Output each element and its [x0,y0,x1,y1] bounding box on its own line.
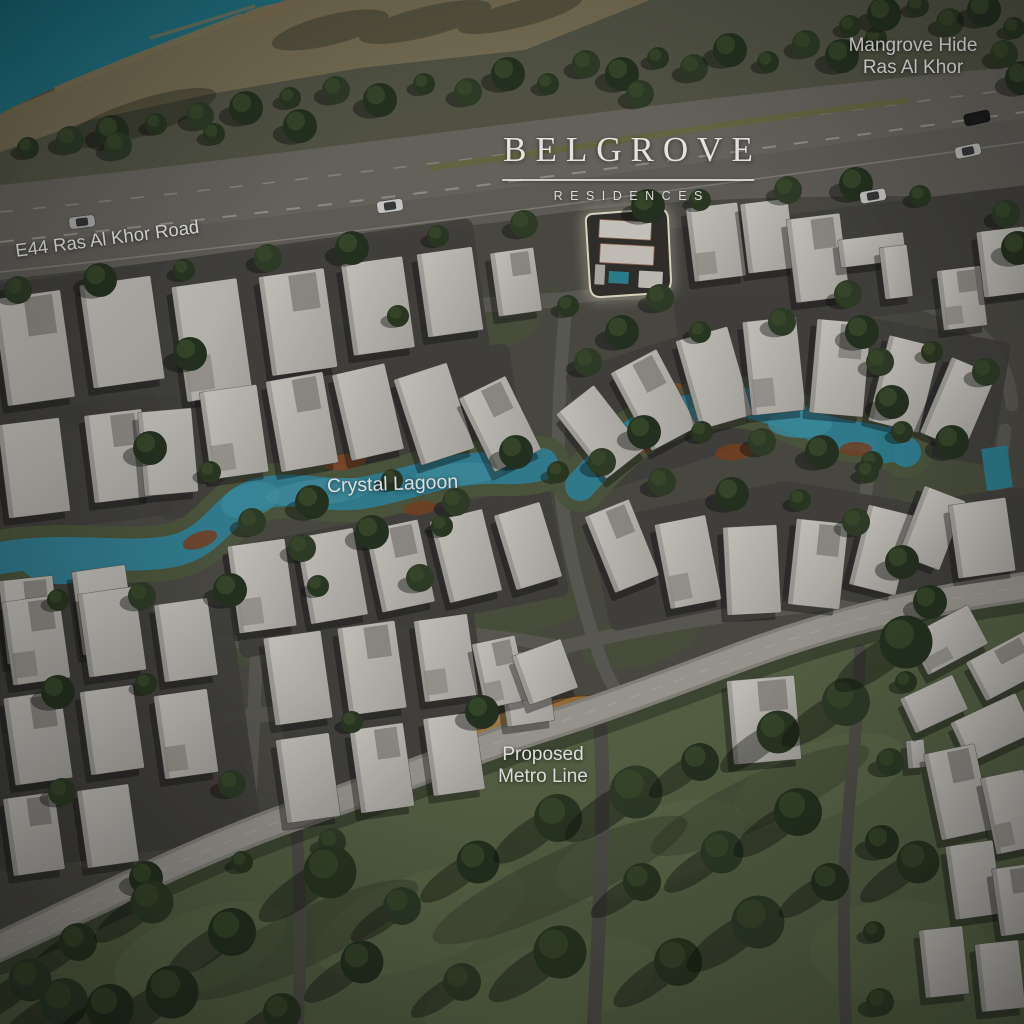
building [343,723,415,821]
building [71,784,140,876]
building [717,525,782,623]
building [252,268,338,384]
building [969,940,1024,1020]
building [410,247,484,346]
building [942,497,1017,586]
building [148,598,219,691]
building [408,614,480,710]
building [484,247,543,324]
building [331,620,408,723]
building [0,418,71,527]
map-render-canvas [0,0,1024,1024]
building [73,685,145,783]
building [913,926,971,1006]
building [147,689,219,787]
building [269,733,341,831]
masterplan-map: BELGROVE RESIDENCES Mangrove Hide Ras Al… [0,0,1024,1024]
building [257,630,334,733]
